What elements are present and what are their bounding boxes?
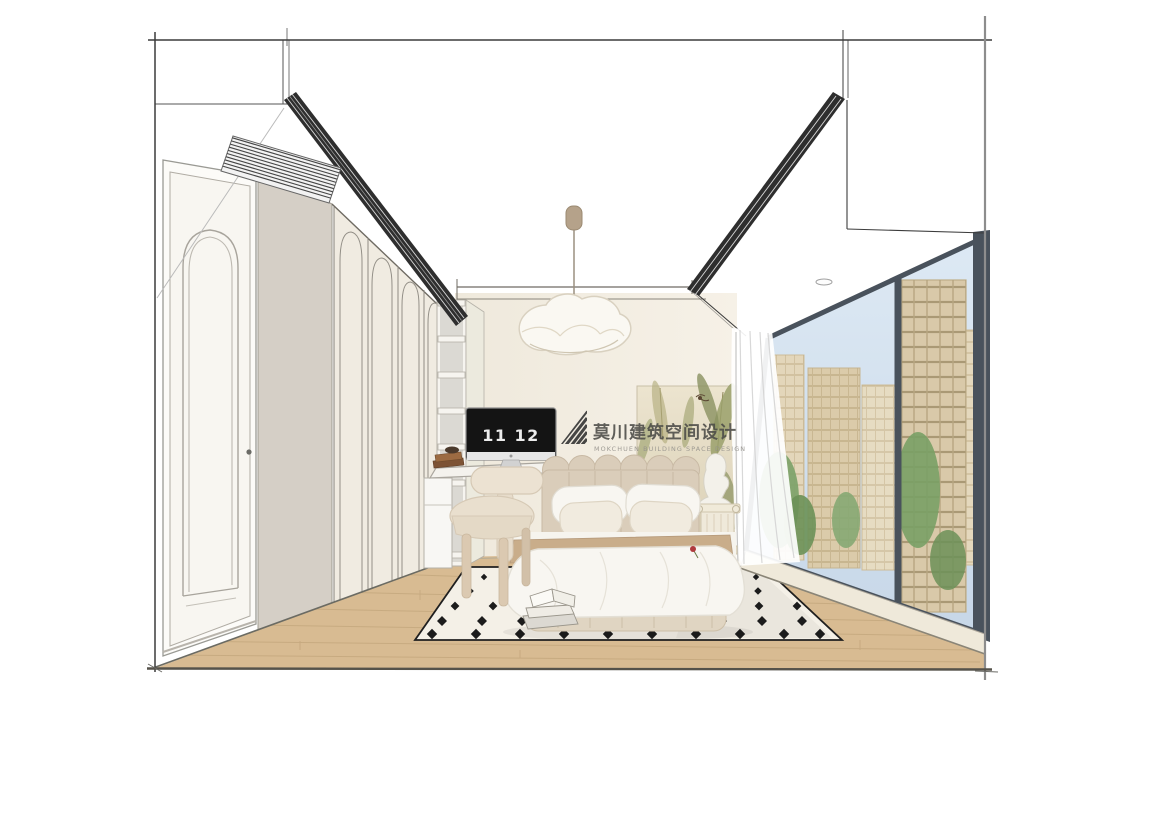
apple-logo-icon: [510, 455, 513, 458]
chair-leg-front-left: [462, 534, 471, 598]
border-bottom: [147, 669, 992, 670]
bedroom-sketch-svg: 11 12: [0, 0, 1150, 813]
downlight: [816, 279, 832, 285]
screen-clock: 11 12: [482, 426, 540, 445]
chair-leg-front-right: [499, 538, 508, 606]
linear-ac-grille-right: [687, 92, 845, 296]
watermark-en-text: MOKCHUEN BUILDING SPACE DESIGN: [594, 445, 746, 453]
door-handle: [246, 449, 251, 454]
window-corner-post: [973, 230, 990, 642]
interior-rendering: 11 12: [0, 0, 1150, 813]
watermark-cn-text: 莫川建筑空间设计: [592, 422, 737, 443]
side-wall-panel: [258, 168, 332, 632]
chair-leg-back: [522, 528, 530, 586]
pendant-canopy: [566, 206, 582, 230]
arched-door: [163, 160, 256, 656]
desk-cabinet: [424, 478, 452, 568]
chair-backrest: [471, 467, 543, 494]
cloud-pendant-light: [519, 206, 631, 355]
